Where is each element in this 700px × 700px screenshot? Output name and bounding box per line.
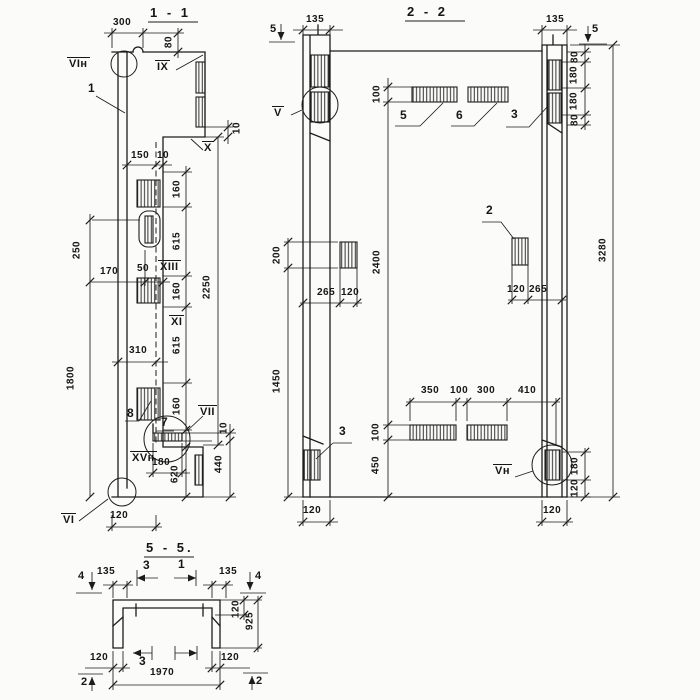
dim-410: 410	[518, 385, 536, 396]
dim-170: 170	[100, 266, 118, 277]
dim-120-right: 120	[507, 284, 525, 295]
position-label-3-top: 3	[511, 107, 518, 121]
cut-mark-4-left: 4	[78, 570, 85, 582]
dim-300: 300	[113, 17, 131, 28]
position-label-1: 1	[88, 81, 95, 95]
dim-10: 10	[157, 150, 169, 161]
cut-mark-2-right: 2	[256, 675, 263, 687]
dim-250: 250	[72, 241, 83, 259]
dim-50: 50	[137, 263, 149, 274]
dim-135-left-5-5: 135	[97, 566, 115, 577]
dimension-lines	[76, 21, 620, 691]
dim-615-a: 615	[172, 232, 183, 250]
dim-620: 620	[170, 465, 181, 483]
dim-100-bot: 100	[371, 423, 382, 441]
section-title-1-1: 1 - 1	[150, 5, 191, 20]
dim-2250: 2250	[202, 275, 213, 299]
dim-310: 310	[129, 345, 147, 356]
position-label-8: 8	[127, 406, 134, 420]
cut-mark-4-right: 4	[255, 570, 262, 582]
dim-180: 180	[152, 457, 170, 468]
dim-1450: 1450	[272, 369, 283, 393]
embedded-plates	[137, 55, 561, 485]
mark-VIn-top: VIн	[67, 57, 90, 70]
dim-135-left: 135	[306, 14, 324, 25]
dim-100-top: 100	[372, 85, 383, 103]
rebar-mark-3-bottom: 3	[139, 654, 146, 668]
mark-VI-bottom: VI	[61, 513, 76, 526]
dim-180-b: 180	[569, 92, 580, 110]
dim-120-bottom-1-1: 120	[110, 510, 128, 521]
dim-440: 440	[214, 455, 225, 473]
mark-Vn: Vн	[493, 464, 512, 477]
position-label-7: 7	[161, 415, 168, 429]
dim-120-bottom-right-5-5: 120	[221, 652, 239, 663]
drawing-canvas: 1 - 1 300 80 VIн 1 IX X 10 150 10 250 17…	[0, 0, 700, 700]
section-cut-arrows	[89, 32, 592, 685]
dim-120-slab: 120	[231, 600, 242, 618]
dim-120-under-right-column: 120	[543, 505, 561, 516]
dim-200: 200	[272, 246, 283, 264]
dim-120-bottom-left-5-5: 120	[90, 652, 108, 663]
dim-2400: 2400	[372, 250, 383, 274]
dim-135-right: 135	[546, 14, 564, 25]
dim-10-step: 10	[232, 122, 243, 134]
dim-180-a: 180	[569, 66, 580, 84]
mark-XI: XI	[169, 315, 184, 328]
dim-120-under-left-column: 120	[303, 505, 321, 516]
position-label-5: 5	[400, 108, 407, 122]
position-label-6: 6	[456, 108, 463, 122]
drawing-linework	[0, 0, 700, 700]
dim-450: 450	[371, 456, 382, 474]
section-title-2-2: 2 - 2	[407, 4, 448, 19]
dim-80: 80	[164, 36, 175, 48]
dim-350: 350	[421, 385, 439, 396]
rebar-mark-3-top: 3	[143, 558, 150, 572]
dim-160-b: 160	[172, 282, 183, 300]
dimension-ticks	[86, 26, 617, 689]
mark-V: V	[272, 106, 284, 119]
dim-180-bottom-right: 180	[570, 457, 581, 475]
position-label-2: 2	[486, 203, 493, 217]
section-title-5-5: 5 - 5.	[146, 540, 194, 555]
cut-mark-5-right: 5	[592, 23, 599, 35]
dim-265-left: 265	[317, 287, 335, 298]
dim-120-left: 120	[341, 287, 359, 298]
cut-mark-2-left: 2	[81, 676, 88, 688]
mark-IX: IX	[155, 60, 170, 73]
dim-80-a: 80	[570, 51, 581, 63]
dim-135-right-5-5: 135	[219, 566, 237, 577]
mark-XIII: XIII	[158, 260, 181, 273]
rebar-mark-1-top: 1	[178, 557, 185, 571]
dim-925: 925	[245, 612, 256, 630]
dim-1970: 1970	[150, 667, 174, 678]
dim-3280: 3280	[598, 238, 609, 262]
dim-1800: 1800	[66, 366, 77, 390]
dim-100-mid: 100	[450, 385, 468, 396]
position-label-3-bottom: 3	[339, 424, 346, 438]
dim-160-c: 160	[172, 397, 183, 415]
dim-615-b: 615	[172, 336, 183, 354]
dim-265-right: 265	[529, 284, 547, 295]
mark-X: X	[202, 141, 214, 154]
dim-10-c: 10	[219, 422, 230, 434]
dim-120-bottom-right-chain: 120	[570, 479, 581, 497]
dim-150: 150	[131, 150, 149, 161]
dim-160-a: 160	[172, 180, 183, 198]
dim-300-bottom: 300	[477, 385, 495, 396]
mark-VII: VII	[198, 405, 217, 418]
cut-mark-5-left: 5	[270, 23, 277, 35]
dim-80-b: 80	[570, 114, 581, 126]
